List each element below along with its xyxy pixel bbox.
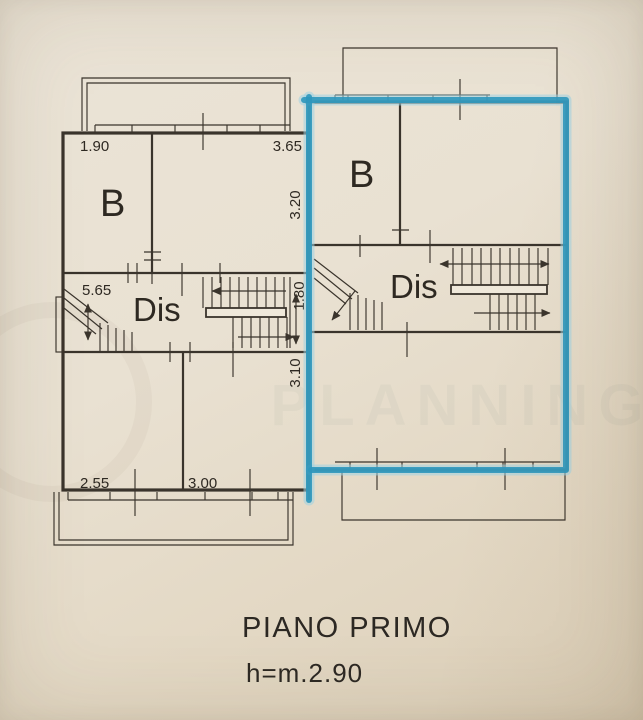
dim-label-5-65: 5.65 — [82, 282, 111, 299]
floorplan-photo: PLANNING — [0, 0, 643, 720]
floor-title: PIANO PRIMO — [242, 612, 452, 644]
right-unit-main-stairs — [440, 248, 550, 330]
floor-plan-drawing: PLANNING — [0, 0, 643, 720]
right-unit-bottom-balcony — [342, 470, 565, 520]
title-block: PIANO PRIMO h=m.2.90 — [242, 612, 452, 688]
dim-label-3-10: 3.10 — [287, 358, 304, 387]
dim-label-3-20: 3.20 — [287, 190, 304, 219]
left-unit-bottom-balcony — [54, 492, 293, 545]
left-unit-top-balcony — [82, 78, 290, 133]
dim-label-2-55: 2.55 — [80, 475, 109, 492]
left-bathroom-label: B — [100, 183, 125, 225]
floor-height-note: h=m.2.90 — [246, 658, 363, 688]
dim-label-1-90: 1.90 — [80, 138, 109, 155]
watermark-logo-circle — [0, 310, 144, 494]
dim-label-3-65: 3.65 — [273, 138, 302, 155]
right-unit-top-balcony — [343, 48, 557, 100]
left-hallway-label: Dis — [133, 291, 181, 328]
right-unit: B Dis — [304, 48, 567, 520]
right-unit-interior-walls — [309, 102, 567, 332]
right-hallway-label: Dis — [390, 268, 438, 305]
dim-label-3-00: 3.00 — [188, 475, 217, 492]
right-bathroom-label: B — [349, 154, 374, 196]
right-unit-winder-stairs — [314, 259, 382, 330]
left-unit-main-stairs — [203, 277, 296, 348]
watermark-text: PLANNING — [271, 373, 643, 438]
